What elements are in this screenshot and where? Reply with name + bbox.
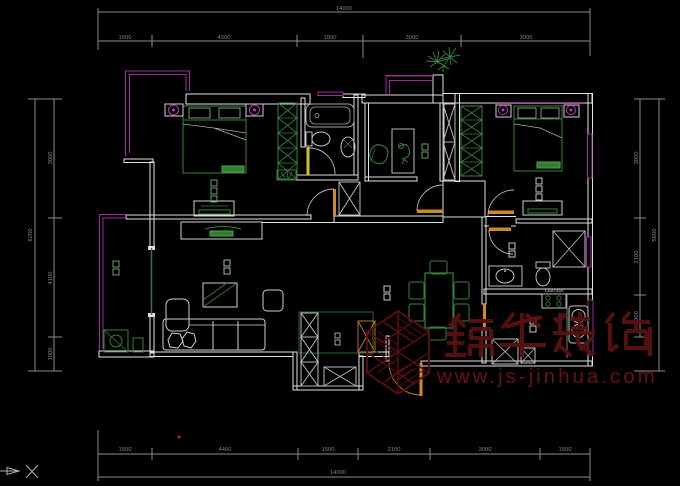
svg-text:14000: 14000 bbox=[330, 470, 346, 476]
svg-text:1500: 1500 bbox=[322, 447, 335, 453]
svg-text:1000: 1000 bbox=[48, 348, 54, 361]
svg-text:14000: 14000 bbox=[336, 6, 352, 12]
svg-text:4500: 4500 bbox=[218, 35, 231, 41]
svg-text:2100: 2100 bbox=[388, 447, 401, 453]
svg-text:3000: 3000 bbox=[406, 35, 419, 41]
svg-text:1800: 1800 bbox=[324, 35, 337, 41]
svg-text:3800: 3800 bbox=[634, 152, 640, 165]
svg-text:1500: 1500 bbox=[119, 447, 132, 453]
svg-text:8200: 8200 bbox=[28, 229, 34, 242]
svg-text:1350-450: 1350-450 bbox=[544, 288, 564, 293]
svg-text:900: 900 bbox=[634, 311, 640, 321]
svg-text:3000: 3000 bbox=[48, 152, 54, 165]
svg-text:2100: 2100 bbox=[634, 251, 640, 264]
svg-text:4100: 4100 bbox=[48, 272, 54, 285]
svg-text:1500: 1500 bbox=[119, 35, 132, 41]
svg-text:5600: 5600 bbox=[652, 229, 658, 242]
svg-text:www.js-jinhua.com: www.js-jinhua.com bbox=[436, 365, 658, 388]
svg-text:1500: 1500 bbox=[559, 447, 572, 453]
svg-text:3000: 3000 bbox=[520, 35, 533, 41]
svg-text:4400: 4400 bbox=[219, 447, 232, 453]
svg-text:3000: 3000 bbox=[479, 447, 492, 453]
